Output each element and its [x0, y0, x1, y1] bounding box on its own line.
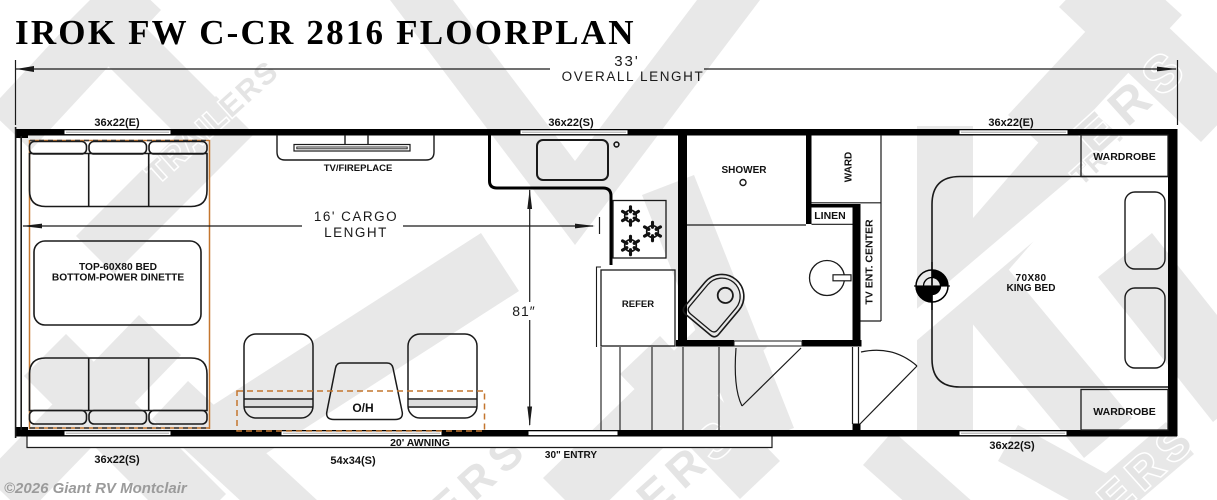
svg-text:20' AWNING: 20' AWNING [390, 437, 450, 449]
svg-text:33': 33' [614, 53, 640, 70]
svg-text:OVERALL LENGHT: OVERALL LENGHT [562, 69, 705, 84]
svg-text:36x22(E): 36x22(E) [94, 117, 140, 129]
svg-text:WARDROBE: WARDROBE [1093, 406, 1155, 418]
svg-text:KING BED: KING BED [1007, 283, 1056, 294]
svg-text:30" ENTRY: 30" ENTRY [545, 450, 597, 461]
svg-text:81″: 81″ [512, 303, 536, 319]
svg-text:©2026 Giant RV Montclair: ©2026 Giant RV Montclair [4, 480, 188, 497]
svg-text:BOTTOM-POWER DINETTE: BOTTOM-POWER DINETTE [52, 273, 184, 284]
svg-text:WARD: WARD [843, 152, 854, 183]
svg-text:36x22(E): 36x22(E) [988, 117, 1034, 129]
svg-text:16' CARGO: 16' CARGO [314, 209, 398, 224]
svg-text:TV ENT. CENTER: TV ENT. CENTER [863, 219, 875, 305]
svg-text:TOP-60X80 BED: TOP-60X80 BED [79, 262, 157, 273]
svg-text:LINEN: LINEN [814, 210, 846, 222]
svg-text:WARDROBE: WARDROBE [1093, 151, 1155, 163]
svg-text:36x22(S): 36x22(S) [94, 454, 140, 466]
svg-text:TV/FIREPLACE: TV/FIREPLACE [324, 163, 393, 174]
svg-text:54x34(S): 54x34(S) [330, 455, 376, 467]
svg-text:REFER: REFER [622, 299, 654, 310]
svg-text:36x22(S): 36x22(S) [548, 117, 594, 129]
svg-text:SHOWER: SHOWER [722, 165, 768, 176]
svg-text:36x22(S): 36x22(S) [989, 440, 1035, 452]
svg-text:IROK FW C-CR 2816 FLOORPLAN: IROK FW C-CR 2816 FLOORPLAN [15, 13, 636, 52]
svg-text:O/H: O/H [352, 401, 373, 415]
svg-text:LENGHT: LENGHT [324, 225, 388, 240]
